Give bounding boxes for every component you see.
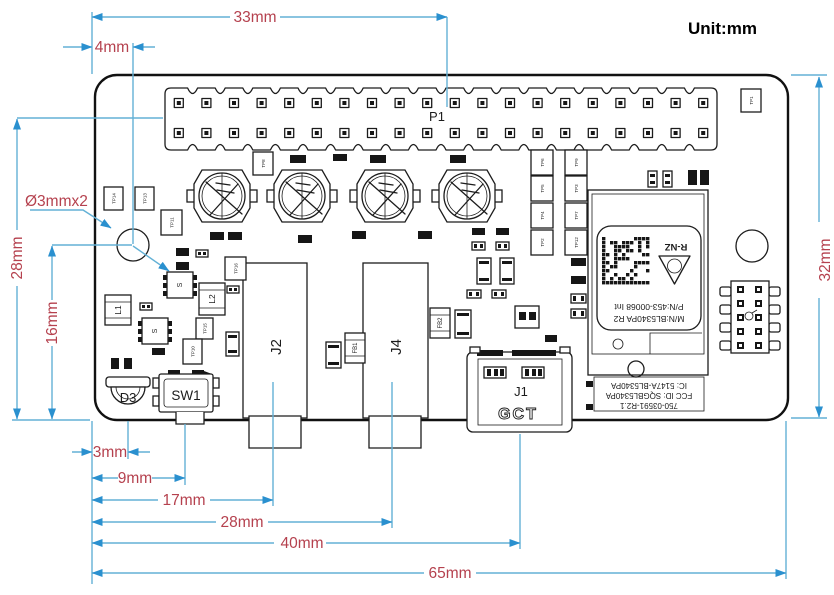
sw1-actuator: [176, 412, 204, 424]
dim-28mm-left: 28mm: [9, 236, 26, 279]
j1-tab-left: [470, 347, 480, 353]
smd-part: [333, 154, 347, 161]
header-pin-center: [618, 131, 622, 135]
header-pin-center: [204, 101, 208, 105]
j4-label: J4: [388, 339, 405, 355]
smd-part: [472, 242, 485, 250]
ic-chip-2: S: [138, 318, 172, 344]
header-pin-center: [177, 101, 181, 105]
fb2-label: FB2: [438, 317, 444, 329]
header-pin-center: [232, 101, 236, 105]
testpoint-label: TP16: [234, 263, 239, 274]
dim-33mm: 33mm: [233, 9, 276, 26]
cert-mark-label: R-NZ: [664, 241, 687, 252]
l2-label: L2: [207, 294, 217, 304]
smd-part: [228, 232, 242, 240]
dim-3mm: 3mm: [93, 444, 127, 461]
audio-jack-j4: J4: [363, 263, 428, 448]
diode-part: [515, 306, 539, 328]
j2-barrel: [249, 416, 301, 448]
smd-part: [496, 242, 509, 250]
testpoint-label: TP9: [574, 158, 579, 167]
header-pin-center: [591, 131, 595, 135]
dim-16mm: 16mm: [44, 301, 61, 344]
module-model-label: M/N:BL5340PA R2: [613, 314, 684, 324]
smd-part: [571, 276, 586, 284]
ic-chip-1: S: [163, 272, 197, 298]
gct-brand-label: GCT: [498, 406, 538, 423]
l1-label: L1: [113, 305, 123, 315]
usb-connector-j1: J1 GCT: [467, 347, 572, 432]
j1-pad-right: [522, 367, 544, 378]
module-partnum-label: P/N:453-00068 Int: [614, 302, 684, 312]
smd-part: [370, 155, 386, 163]
smd-part: [196, 250, 208, 257]
power-inductor: [267, 170, 337, 222]
pcb-dimension-drawing: P1 L1 L2 S S J2: [0, 0, 834, 590]
smd-part: [418, 231, 432, 239]
ferrite-fb1: FB1: [345, 333, 365, 363]
j1-pad-left: [484, 367, 506, 378]
inductor-l1: L1: [105, 295, 131, 325]
testpoint-label: TP8: [261, 159, 266, 168]
power-inductor: [350, 170, 420, 222]
fb1-label: FB1: [353, 342, 359, 354]
header-pin-center: [342, 101, 346, 105]
header-pin-center: [260, 101, 264, 105]
header-pin-center: [646, 131, 650, 135]
power-inductor: [432, 170, 502, 222]
smd-part: [496, 228, 509, 235]
header-pin-center: [453, 101, 457, 105]
smd-part: [571, 258, 586, 266]
inductor-l2: L2: [199, 283, 225, 315]
header-pin-center: [591, 101, 595, 105]
pcb-dimension-drawing-page: P1 L1 L2 S S J2: [0, 0, 834, 590]
dim-40mm: 40mm: [280, 535, 323, 552]
smd-part: [352, 231, 366, 239]
j1-tab-right: [560, 347, 570, 353]
j4-barrel: [369, 416, 421, 448]
dim-65mm: 65mm: [428, 565, 471, 582]
header-pin-center: [425, 131, 429, 135]
smd-part: [290, 155, 306, 163]
dim-9mm: 9mm: [118, 470, 152, 487]
header-pin-center: [674, 131, 678, 135]
smd-part: [152, 348, 165, 355]
smd-part: [210, 232, 224, 240]
header-pin-center: [370, 131, 374, 135]
fcc-line-1: 750-03591-R2.1: [620, 401, 678, 410]
smd-part: [227, 286, 239, 293]
smd-part: [176, 248, 189, 256]
header-pin-center: [674, 101, 678, 105]
smd-part: [298, 235, 312, 243]
dim-4mm: 4mm: [95, 39, 129, 56]
header-pin-center: [480, 131, 484, 135]
testpoint-label: TP1: [749, 96, 754, 105]
header-pin-center: [453, 131, 457, 135]
fcc-line-2: FCC ID: SQGBL5340PA: [605, 391, 692, 400]
audio-jack-j2: J2: [243, 263, 307, 448]
testpoint-label: TP12: [574, 237, 579, 248]
header-pin-center: [536, 101, 540, 105]
j2-label: J2: [268, 339, 285, 355]
header-pin-center: [260, 131, 264, 135]
header-pin-center: [701, 101, 705, 105]
header-pin-center: [701, 131, 705, 135]
testpoint-label: TP3: [574, 184, 579, 193]
header-pin-center: [204, 131, 208, 135]
testpoint-label: TP2: [540, 238, 545, 247]
chip2-mark: S: [152, 328, 159, 333]
smd-part: [648, 171, 657, 187]
smd-part: [450, 155, 466, 163]
smd-part: [176, 262, 189, 270]
dim-17mm: 17mm: [162, 492, 205, 509]
testpoint-label: TP7: [574, 211, 579, 220]
header-pin-center: [508, 101, 512, 105]
testpoint-label: TP15: [203, 323, 208, 334]
dim-28mm-bottom: 28mm: [220, 514, 263, 531]
unit-label: Unit:mm: [688, 19, 757, 38]
testpoint-label: TP6: [540, 158, 545, 167]
header-pin-center: [398, 101, 402, 105]
testpoint-label: TP11: [170, 217, 175, 228]
smd-part: [140, 303, 152, 310]
dim-hole-callout: Ø3mmx2: [25, 193, 88, 210]
testpoint-label: TP10: [191, 346, 196, 357]
fcc-line-3: IC: 5147A-BL5340PA: [610, 381, 687, 390]
header-pin-center: [563, 101, 567, 105]
sw1-label: SW1: [171, 388, 200, 403]
header-pin-center: [287, 131, 291, 135]
header-pin-center: [315, 101, 319, 105]
p1-label: P1: [429, 109, 445, 124]
testpoint-label: TP4: [540, 211, 545, 220]
smd-part: [472, 228, 485, 235]
header-pin-center: [480, 101, 484, 105]
smd-part: [688, 170, 697, 185]
ferrite-fb2: FB2: [430, 308, 450, 338]
header-pin-center: [177, 131, 181, 135]
header-pin-center: [618, 101, 622, 105]
header-pin-center: [563, 131, 567, 135]
header-pin-center: [370, 101, 374, 105]
header-pin-center: [536, 131, 540, 135]
dim-32mm: 32mm: [817, 238, 834, 281]
header-pin-center: [398, 131, 402, 135]
header-pin-center: [508, 131, 512, 135]
testpoint-label: TP5: [540, 184, 545, 193]
header-pin-center: [315, 131, 319, 135]
header-pin-center: [287, 101, 291, 105]
header-pin-center: [342, 131, 346, 135]
chip1-mark: S: [177, 282, 184, 287]
j1-label: J1: [514, 384, 528, 399]
d3-label: D3: [120, 390, 137, 405]
header-pin-center: [232, 131, 236, 135]
header-pin-center: [646, 101, 650, 105]
header-pin-center: [425, 101, 429, 105]
testpoint-label: TP14: [112, 193, 117, 204]
testpoint-label: TP13: [143, 193, 148, 204]
smd-part: [663, 171, 672, 187]
smd-part: [545, 335, 557, 342]
power-inductor: [187, 170, 257, 222]
smd-part: [700, 170, 709, 185]
